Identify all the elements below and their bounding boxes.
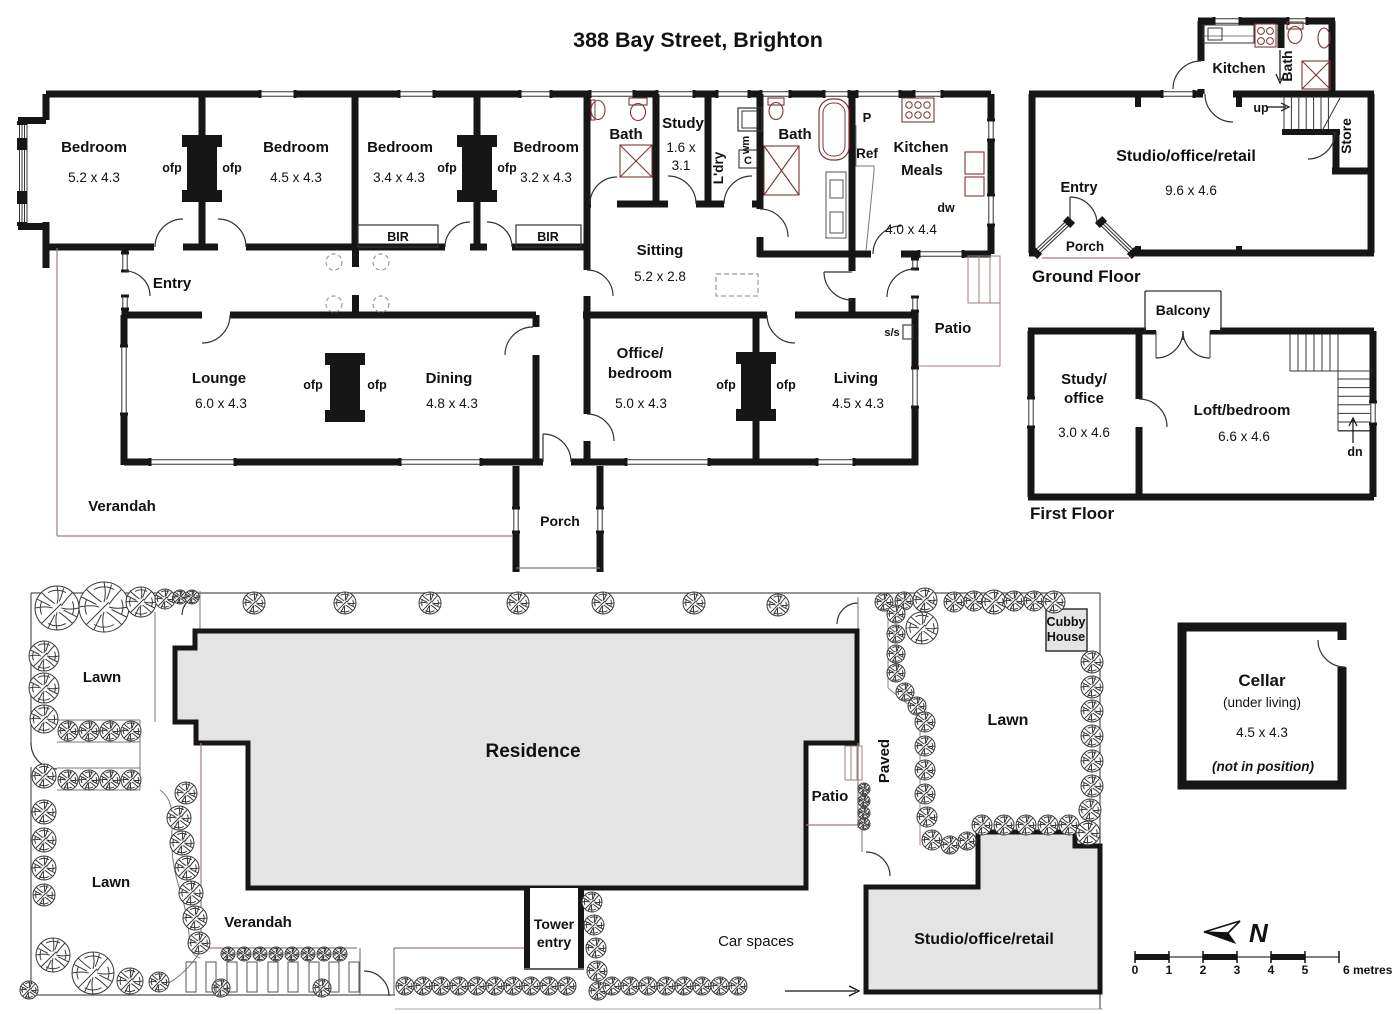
svg-text:Entry: Entry bbox=[1060, 180, 1097, 196]
svg-text:4: 4 bbox=[1268, 963, 1275, 977]
svg-text:bedroom: bedroom bbox=[608, 365, 672, 382]
svg-text:3.2 x 4.3: 3.2 x 4.3 bbox=[520, 170, 572, 185]
svg-text:Loft/bedroom: Loft/bedroom bbox=[1194, 402, 1291, 419]
svg-text:5: 5 bbox=[1302, 963, 1309, 977]
svg-text:ofp: ofp bbox=[303, 378, 323, 392]
svg-text:Entry: Entry bbox=[153, 275, 192, 292]
svg-text:Bedroom: Bedroom bbox=[263, 139, 329, 156]
svg-text:BIR: BIR bbox=[537, 230, 559, 244]
svg-text:N: N bbox=[1249, 918, 1269, 948]
svg-text:4.5 x 4.3: 4.5 x 4.3 bbox=[832, 396, 884, 411]
svg-text:4.5 x 4.3: 4.5 x 4.3 bbox=[1236, 725, 1288, 740]
svg-text:dw: dw bbox=[937, 201, 955, 215]
svg-text:wm: wm bbox=[740, 136, 752, 156]
svg-text:First Floor: First Floor bbox=[1030, 504, 1114, 523]
svg-text:s/s: s/s bbox=[884, 327, 899, 339]
svg-text:Ref: Ref bbox=[856, 146, 878, 161]
svg-text:Bath: Bath bbox=[1279, 50, 1295, 81]
svg-text:Lawn: Lawn bbox=[988, 712, 1029, 729]
svg-text:P: P bbox=[863, 110, 872, 125]
svg-text:Lawn: Lawn bbox=[83, 669, 121, 686]
svg-text:ofp: ofp bbox=[222, 161, 242, 175]
svg-text:office: office bbox=[1064, 390, 1104, 407]
svg-text:0: 0 bbox=[1132, 963, 1139, 977]
svg-text:Patio: Patio bbox=[812, 788, 849, 805]
svg-text:Bath: Bath bbox=[778, 126, 811, 143]
svg-text:Patio: Patio bbox=[935, 320, 972, 337]
svg-text:6.0 x 4.3: 6.0 x 4.3 bbox=[195, 396, 247, 411]
svg-text:3.1: 3.1 bbox=[672, 158, 691, 173]
svg-text:Ground Floor: Ground Floor bbox=[1032, 267, 1141, 286]
svg-text:4.5 x 4.3: 4.5 x 4.3 bbox=[270, 170, 322, 185]
svg-text:Bedroom: Bedroom bbox=[513, 139, 579, 156]
svg-text:Cubby: Cubby bbox=[1047, 615, 1086, 629]
svg-text:Bedroom: Bedroom bbox=[367, 139, 433, 156]
svg-text:388 Bay Street, Brighton: 388 Bay Street, Brighton bbox=[573, 28, 823, 52]
svg-text:ofp: ofp bbox=[716, 378, 736, 392]
svg-text:Porch: Porch bbox=[1066, 239, 1104, 254]
svg-text:Study: Study bbox=[662, 115, 704, 132]
svg-text:Tower: Tower bbox=[534, 916, 575, 932]
svg-text:dn: dn bbox=[1347, 445, 1362, 459]
svg-text:9.6 x 4.6: 9.6 x 4.6 bbox=[1165, 183, 1217, 198]
svg-text:Verandah: Verandah bbox=[224, 914, 292, 931]
svg-text:Studio/office/retail: Studio/office/retail bbox=[1116, 148, 1256, 165]
svg-text:C: C bbox=[744, 155, 752, 167]
svg-text:ofp: ofp bbox=[162, 161, 182, 175]
svg-text:5.2 x 2.8: 5.2 x 2.8 bbox=[634, 269, 686, 284]
svg-text:Lawn: Lawn bbox=[92, 874, 130, 891]
svg-text:(not in position): (not in position) bbox=[1212, 759, 1314, 774]
svg-text:6.6 x 4.6: 6.6 x 4.6 bbox=[1218, 429, 1270, 444]
svg-text:Residence: Residence bbox=[485, 741, 580, 762]
svg-text:Dining: Dining bbox=[426, 370, 473, 387]
svg-text:Office/: Office/ bbox=[617, 345, 665, 362]
svg-text:Porch: Porch bbox=[540, 513, 580, 529]
svg-text:Store: Store bbox=[1338, 118, 1354, 154]
svg-text:2: 2 bbox=[1200, 963, 1207, 977]
svg-text:Studio/office/retail: Studio/office/retail bbox=[914, 931, 1054, 948]
svg-text:L'dry: L'dry bbox=[711, 151, 726, 184]
svg-text:entry: entry bbox=[537, 934, 571, 950]
svg-text:ofp: ofp bbox=[776, 378, 796, 392]
svg-text:House: House bbox=[1047, 630, 1085, 644]
svg-text:Kitchen: Kitchen bbox=[893, 139, 948, 156]
svg-text:3.0 x 4.6: 3.0 x 4.6 bbox=[1058, 425, 1110, 440]
svg-text:(under living): (under living) bbox=[1223, 695, 1301, 710]
svg-text:ofp: ofp bbox=[437, 161, 457, 175]
svg-text:Balcony: Balcony bbox=[1156, 302, 1211, 318]
svg-text:4.0 x 4.4: 4.0 x 4.4 bbox=[885, 222, 937, 237]
svg-text:BIR: BIR bbox=[387, 230, 409, 244]
svg-text:Paved: Paved bbox=[876, 739, 893, 783]
svg-text:Living: Living bbox=[834, 370, 878, 387]
svg-text:5.0 x 4.3: 5.0 x 4.3 bbox=[615, 396, 667, 411]
svg-text:1.6 x: 1.6 x bbox=[666, 140, 696, 155]
svg-text:4.8 x 4.3: 4.8 x 4.3 bbox=[426, 396, 478, 411]
svg-text:Bath: Bath bbox=[609, 126, 642, 143]
svg-text:up: up bbox=[1253, 101, 1269, 115]
svg-text:Cellar: Cellar bbox=[1238, 671, 1286, 690]
svg-text:Bedroom: Bedroom bbox=[61, 139, 127, 156]
svg-text:Study/: Study/ bbox=[1061, 371, 1108, 388]
svg-text:Meals: Meals bbox=[901, 162, 943, 179]
svg-text:Car spaces: Car spaces bbox=[718, 933, 794, 950]
svg-text:3.4 x 4.3: 3.4 x 4.3 bbox=[373, 170, 425, 185]
svg-text:ofp: ofp bbox=[497, 161, 517, 175]
svg-text:Verandah: Verandah bbox=[88, 498, 156, 515]
svg-text:5.2 x 4.3: 5.2 x 4.3 bbox=[68, 170, 120, 185]
svg-text:Sitting: Sitting bbox=[637, 242, 684, 259]
svg-text:6 metres: 6 metres bbox=[1343, 963, 1393, 977]
svg-text:Kitchen: Kitchen bbox=[1212, 61, 1265, 77]
svg-text:1: 1 bbox=[1166, 963, 1173, 977]
svg-text:3: 3 bbox=[1234, 963, 1241, 977]
svg-text:Lounge: Lounge bbox=[192, 370, 246, 387]
svg-text:ofp: ofp bbox=[367, 378, 387, 392]
